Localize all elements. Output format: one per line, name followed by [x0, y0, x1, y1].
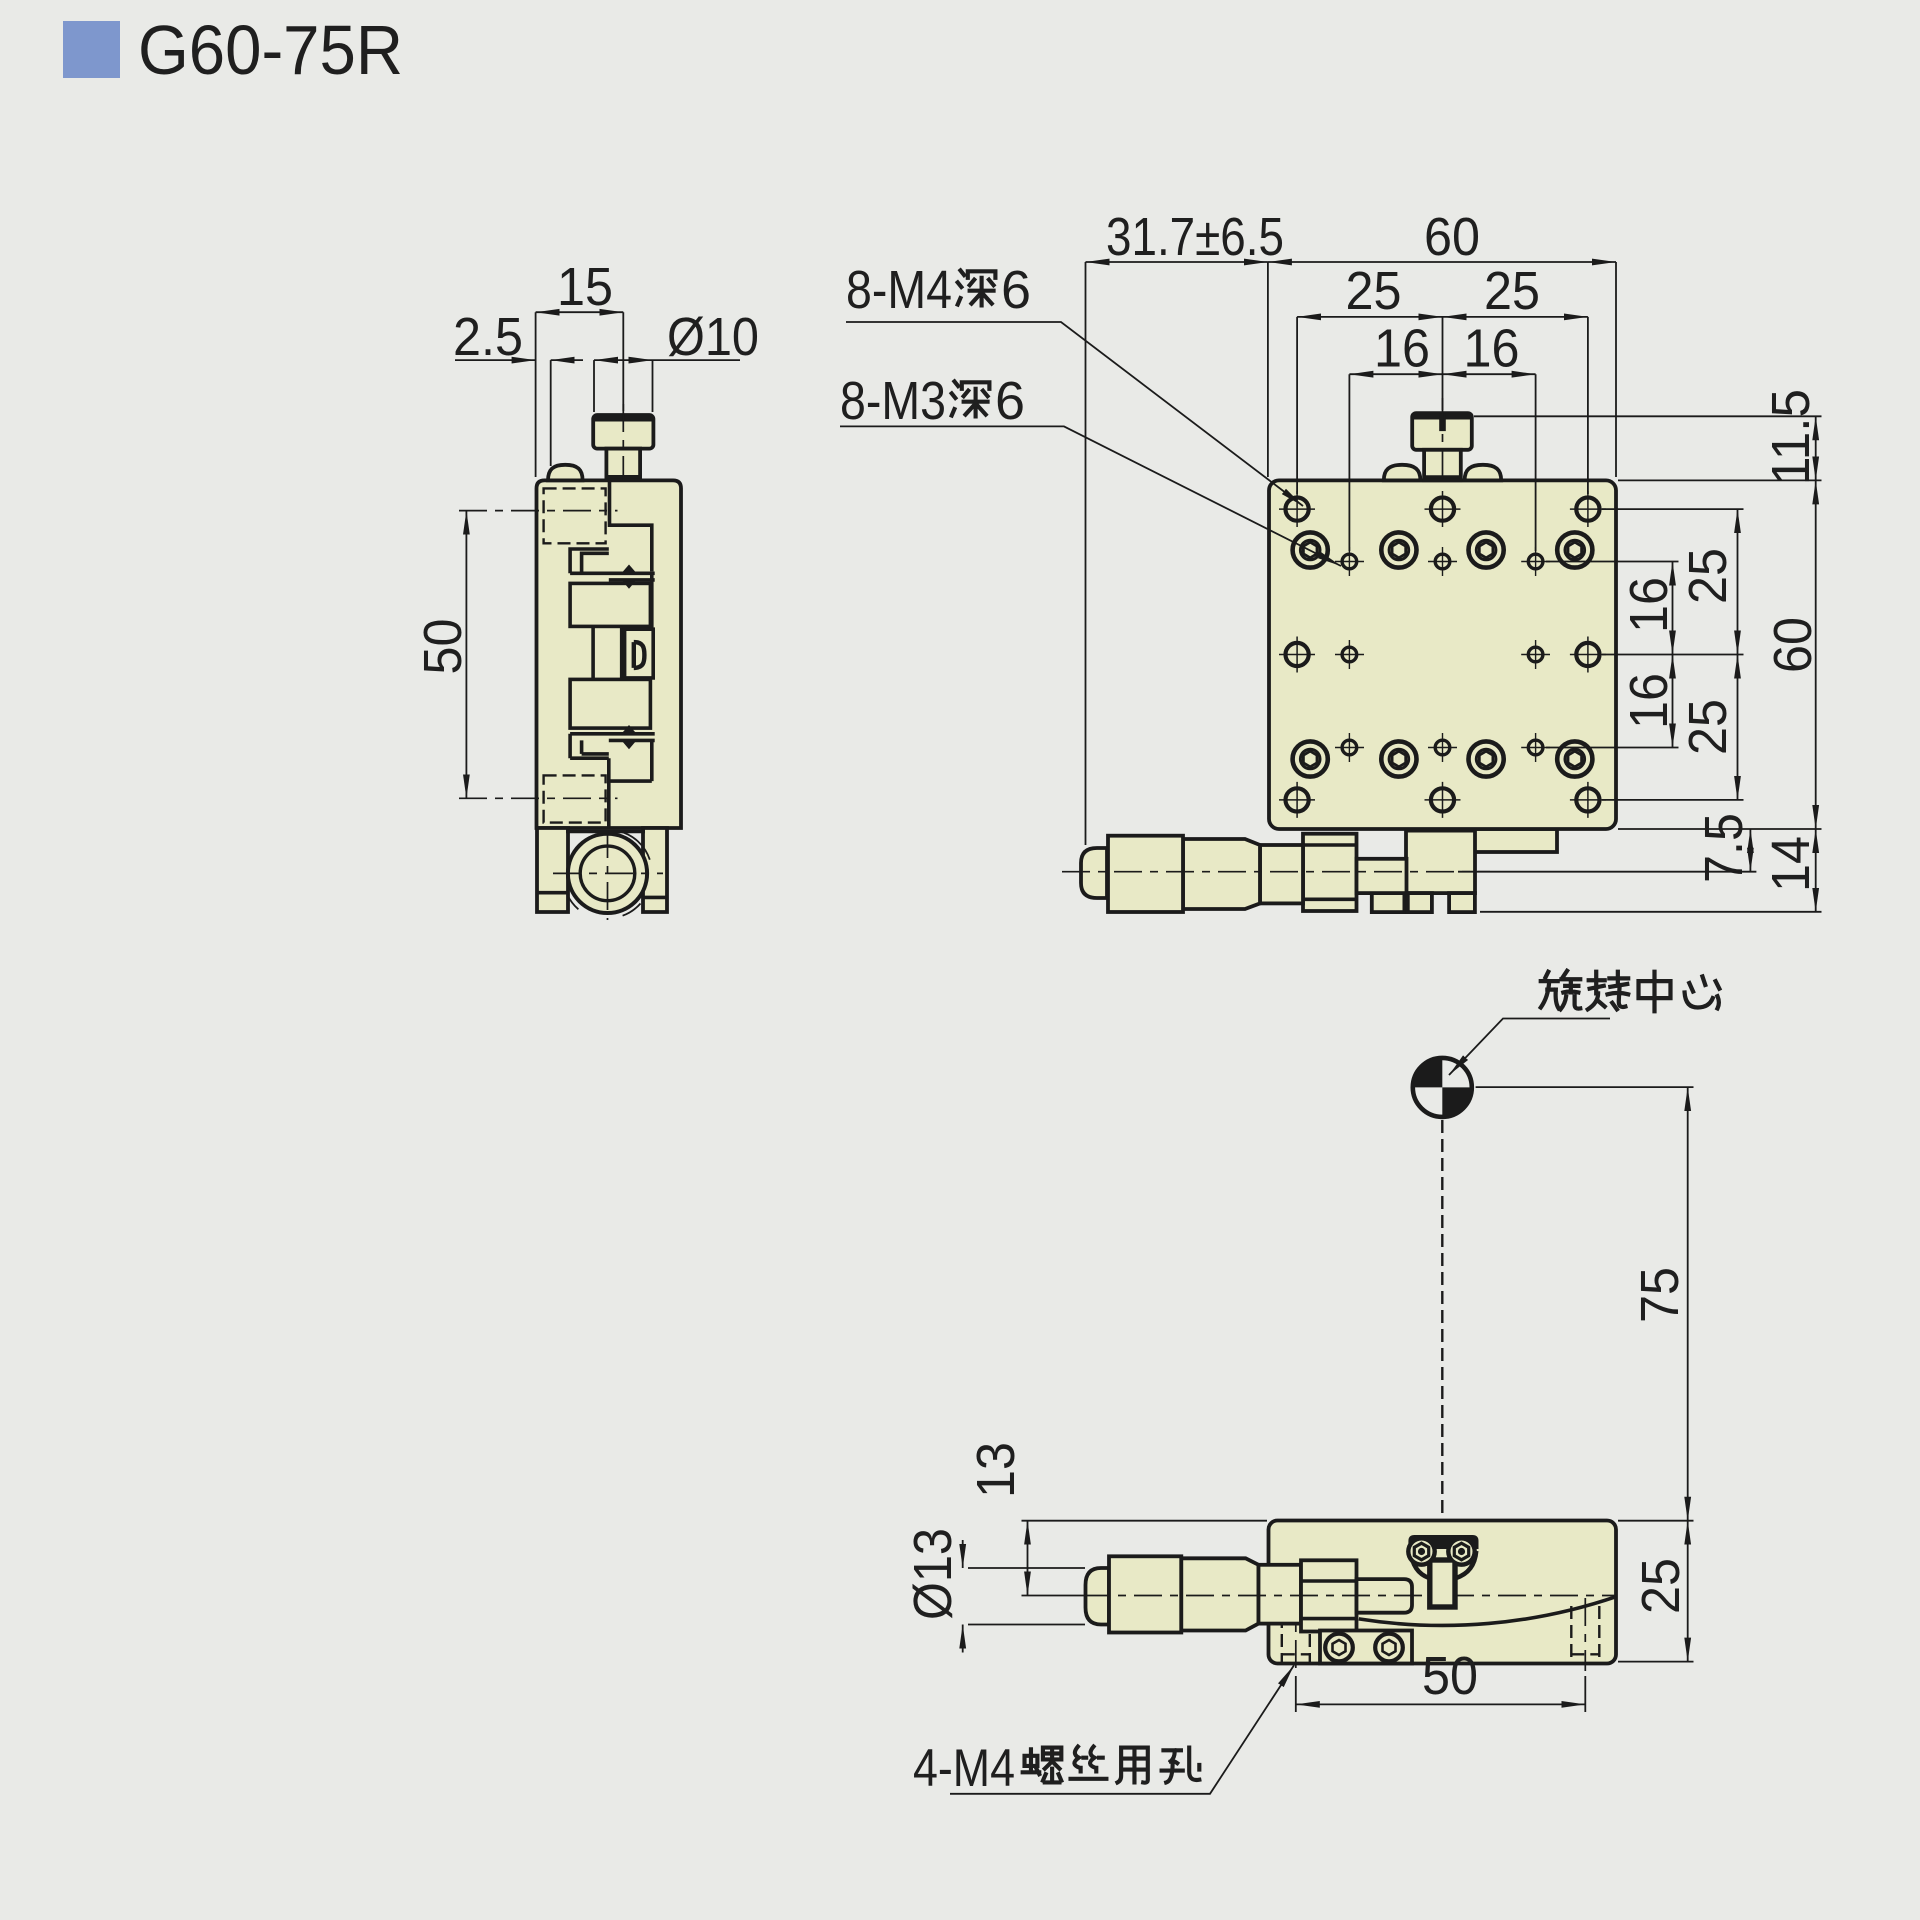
svg-text:15: 15	[557, 257, 613, 317]
svg-text:2.5: 2.5	[453, 307, 523, 367]
svg-text:Ø13: Ø13	[903, 1528, 963, 1620]
svg-text:31.7±6.5: 31.7±6.5	[1106, 207, 1284, 267]
svg-text:50: 50	[413, 619, 473, 675]
svg-text:6: 6	[1001, 260, 1031, 320]
svg-text:75: 75	[1630, 1267, 1690, 1323]
svg-text:25: 25	[1346, 261, 1402, 321]
svg-text:60: 60	[1424, 207, 1480, 267]
svg-text:16: 16	[1464, 319, 1520, 379]
svg-text:60: 60	[1763, 617, 1823, 673]
svg-text:8-M4: 8-M4	[846, 260, 952, 320]
svg-text:50: 50	[1422, 1646, 1478, 1706]
svg-text:14: 14	[1761, 836, 1821, 892]
svg-text:25: 25	[1631, 1558, 1691, 1614]
svg-text:G60-75R: G60-75R	[138, 11, 403, 89]
svg-text:16: 16	[1619, 577, 1679, 633]
svg-text:6: 6	[995, 371, 1025, 431]
svg-text:11.5: 11.5	[1761, 389, 1821, 485]
svg-text:25: 25	[1678, 699, 1738, 755]
svg-text:4-M4: 4-M4	[913, 1739, 1015, 1798]
svg-text:13: 13	[966, 1442, 1026, 1498]
svg-text:8-M3: 8-M3	[840, 371, 946, 431]
svg-text:Ø10: Ø10	[667, 307, 759, 367]
svg-text:16: 16	[1374, 319, 1430, 379]
svg-text:25: 25	[1678, 548, 1738, 604]
svg-text:16: 16	[1619, 673, 1679, 729]
svg-text:25: 25	[1484, 261, 1540, 321]
